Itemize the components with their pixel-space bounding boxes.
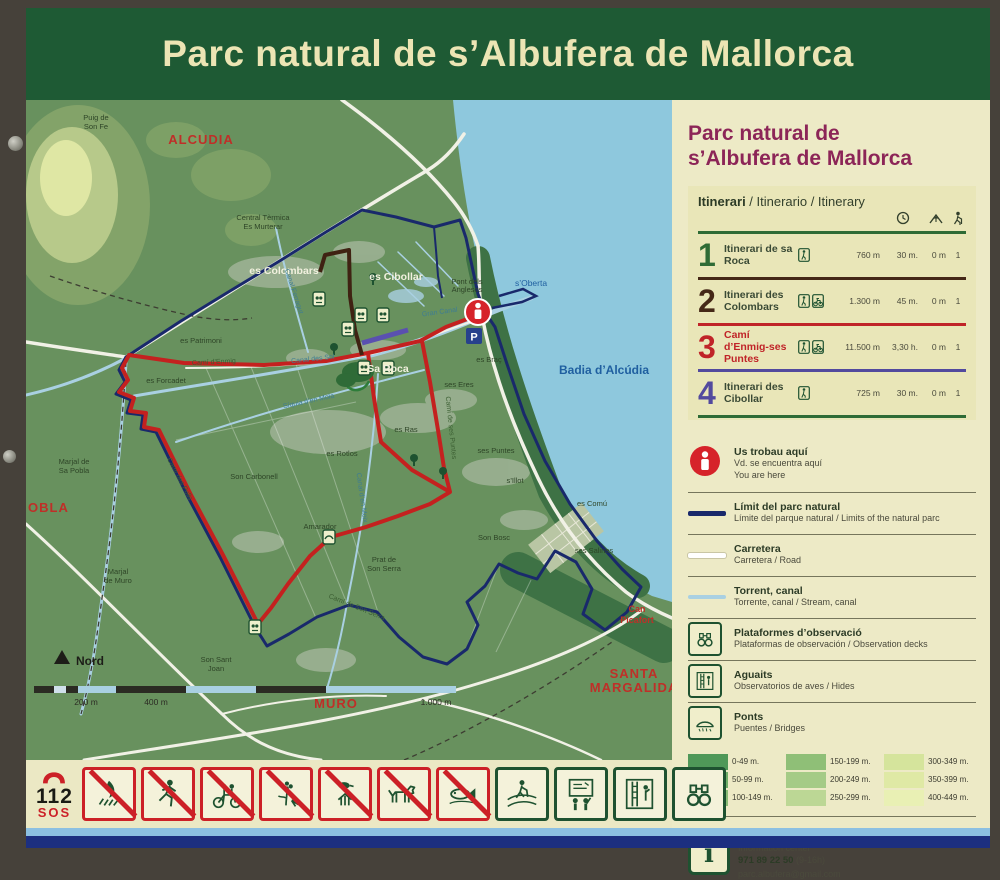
route-number: 2 <box>698 285 724 317</box>
elevation-scale: 0-49 m.50-99 m.100-149 m.150-199 m.200-2… <box>688 754 976 817</box>
elevation-value: 0 m <box>922 342 950 352</box>
map-label: ses Puntes <box>477 446 514 455</box>
time-value: 30 m. <box>884 388 922 398</box>
map-label: Son Sant <box>201 655 233 664</box>
bridge-icon <box>688 706 722 740</box>
scale-label: 400 m <box>144 697 168 707</box>
elevation-label: 0-49 m. <box>728 757 780 766</box>
title-banner: Parc natural de s’Albufera de Mallorca <box>26 8 990 100</box>
footer-icons: 112 SOS <box>36 760 672 828</box>
no-fishing-icon <box>436 767 490 821</box>
map-label: Son Bosc <box>478 533 510 542</box>
map-label: de Muro <box>104 576 132 585</box>
map-label: ALCUDIA <box>168 132 234 147</box>
elevation-label: 200-249 m. <box>826 775 878 784</box>
difficulty-value: 1 <box>950 250 966 260</box>
route-modes <box>798 386 832 400</box>
map-label: es Forcadet <box>146 376 187 385</box>
map-label: Prat de <box>372 555 396 564</box>
map-label: Badia d’Alcúdia <box>559 363 649 377</box>
walk-icon <box>798 294 810 308</box>
elevation-label: 100-149 m. <box>728 793 780 802</box>
map-label: Marjal de <box>59 457 90 466</box>
itinerary-column-icons <box>698 211 966 231</box>
info-email: parc.albufera@gmail.com <box>738 869 841 879</box>
screw-icon <box>8 136 23 151</box>
no-fire-icon <box>82 767 136 821</box>
walk-icon <box>798 340 810 354</box>
clock-icon <box>884 211 922 230</box>
map-label: Sa Pobla <box>59 466 90 475</box>
elevation-icon <box>922 211 950 230</box>
elevation-value: 0 m <box>922 388 950 398</box>
screw-icon <box>3 450 16 463</box>
right-panel: Parc natural de s’Albufera de Mallorca I… <box>672 100 990 828</box>
scale-label: 200 m <box>74 697 98 707</box>
elevation-swatch-row: 200-249 m. <box>786 772 878 788</box>
map-label: es Rotlos <box>326 449 358 458</box>
scale-label: 1.000 m <box>421 697 452 707</box>
map-label: Puig de <box>83 113 108 122</box>
emergency-112: 112 SOS <box>36 769 73 819</box>
no-catching-animals-icon <box>318 767 372 821</box>
elevation-swatch <box>786 754 826 770</box>
binoculars-info-icon <box>672 767 726 821</box>
itinerary-row: 3 Camí d’Enmig-ses Puntes 11.500 m 3,30 … <box>698 323 966 369</box>
observation-hide-icon <box>613 767 667 821</box>
route-number: 4 <box>698 377 724 409</box>
map-label: MARGALIDA <box>590 680 672 695</box>
elevation-label: 150-199 m. <box>826 757 878 766</box>
no-dogs-icon <box>377 767 431 821</box>
elevation-swatch-row: 350-399 m. <box>884 772 976 788</box>
itinerary-row: 2 Itinerari des Colombars 1.300 m 45 m. … <box>698 277 966 323</box>
map-label: es Patrimoni <box>180 336 222 345</box>
panel-title: Parc natural de s’Albufera de Mallorca <box>688 122 976 172</box>
elevation-swatch-row: 250-299 m. <box>786 790 878 806</box>
route-name: Itinerari des Cibollar <box>724 381 798 405</box>
you-are-here-marker <box>465 299 491 325</box>
route-name: Itinerari des Colombars <box>724 289 798 313</box>
map-label: SANTA <box>610 666 659 681</box>
elevation-label: 350-399 m. <box>924 775 976 784</box>
bottom-stripe-dark <box>26 836 990 848</box>
map-label: Es Murterar <box>243 222 283 231</box>
map-label: Picafort <box>620 615 654 625</box>
itinerary-section: Itinerari / Itinerario / Itinerary 1 Iti… <box>688 186 976 420</box>
map-label: es Braç <box>476 355 502 364</box>
walk-icon <box>798 248 810 262</box>
legend-row: Us trobau aquí Vd. se encuentra aquí You… <box>688 436 976 492</box>
elevation-swatch-row: 400-449 m. <box>884 790 976 806</box>
elevation-value: 0 m <box>922 296 950 306</box>
legend-row: Límit del parc natural Límite del parque… <box>688 492 976 534</box>
elevation-label: 50-99 m. <box>728 775 780 784</box>
itinerary-row: 4 Itinerari des Cibollar 725 m 30 m. 0 m… <box>698 369 966 418</box>
itinerary-row: 1 Itinerari de sa Roca 760 m 30 m. 0 m 1 <box>698 231 966 277</box>
map-label: es Cibollar <box>369 271 423 283</box>
elevation-swatch <box>786 772 826 788</box>
legend-row: Ponts Puentes / Bridges <box>688 702 976 744</box>
elevation-swatch <box>786 790 826 806</box>
map-label: Anglesos <box>452 285 483 294</box>
map-label: s’Illot <box>506 476 524 485</box>
bike-icon <box>812 294 824 308</box>
no-running-icon <box>141 767 195 821</box>
elevation-swatch <box>884 790 924 806</box>
elevation-swatch-row: 300-349 m. <box>884 754 976 770</box>
route-modes <box>798 294 832 308</box>
north-label: Nord <box>76 654 104 668</box>
legend-row: Torrent, canal Torrente, canal / Stream,… <box>688 576 976 618</box>
difficulty-value: 1 <box>950 388 966 398</box>
hide-map-icon <box>313 292 325 306</box>
park-map: P 200 m400 m1.000 m ALCUDIAMUROSANTAMARG… <box>26 100 672 760</box>
road-line <box>688 553 726 558</box>
elevation-swatch-row: 150-199 m. <box>786 754 878 770</box>
park-limit-line <box>688 511 726 516</box>
map-label: Son Fe <box>84 122 108 131</box>
cibollar-lagoon <box>388 289 424 303</box>
map-label: Marjal <box>108 567 129 576</box>
sign-title: Parc natural de s’Albufera de Mallorca <box>162 33 853 75</box>
distance-value: 11.500 m <box>832 342 884 352</box>
map-label: es Comú <box>577 499 607 508</box>
park-sign: Parc natural de s’Albufera de Mallorca <box>26 8 990 848</box>
route-modes <box>798 248 832 262</box>
you-are-here-icon <box>688 444 734 483</box>
elevation-label: 300-349 m. <box>924 757 976 766</box>
route-number: 1 <box>698 239 724 271</box>
bridge-map-icon <box>323 530 335 544</box>
binoculars-icon <box>688 622 722 656</box>
map-label: Central Tèrmica <box>236 213 290 222</box>
route-name: Camí d’Enmig-ses Puntes <box>724 329 798 365</box>
route-number: 3 <box>698 331 724 363</box>
parking-icon: P <box>466 328 482 344</box>
bottom-stripe-light <box>26 828 990 836</box>
hide-map-icon <box>377 308 389 322</box>
walking-trail-icon <box>495 767 549 821</box>
hide-map-icon <box>355 308 367 322</box>
map-label: Can <box>628 604 645 614</box>
map-label: Sa Roca <box>367 363 409 375</box>
no-cycling-icon <box>200 767 254 821</box>
elevation-label: 400-449 m. <box>924 793 976 802</box>
time-value: 3,30 h. <box>884 342 922 352</box>
map-label: es Ras <box>394 425 418 434</box>
legend-row: Aguaits Observatorios de aves / Hides <box>688 660 976 702</box>
map-label: OBLA <box>28 500 69 515</box>
elevation-value: 0 m <box>922 250 950 260</box>
distance-value: 725 m <box>832 388 884 398</box>
panel-title-line1: Parc natural de <box>688 122 840 145</box>
distance-value: 1.300 m <box>832 296 884 306</box>
hide-map-icon <box>249 620 261 634</box>
hide-icon <box>688 664 722 698</box>
hiker-icon <box>950 211 966 231</box>
phone-icon <box>37 769 71 785</box>
map-label: s’Oberta <box>515 278 547 288</box>
route-modes <box>798 340 832 354</box>
time-value: 45 m. <box>884 296 922 306</box>
map-label: Joan <box>208 664 224 673</box>
legend-row: Carretera Carretera / Road <box>688 534 976 576</box>
time-value: 30 m. <box>884 250 922 260</box>
distance-value: 760 m <box>832 250 884 260</box>
info-phone: 971 89 22 50 <box>738 855 793 866</box>
difficulty-value: 1 <box>950 342 966 352</box>
svg-text:P: P <box>470 332 477 344</box>
hide-map-icon <box>342 322 354 336</box>
no-picking-plants-icon <box>259 767 313 821</box>
elevation-swatch <box>884 772 924 788</box>
itinerary-header: Itinerari / Itinerario / Itinerary <box>698 194 966 209</box>
map-label: ses Eres <box>444 380 473 389</box>
walk-icon <box>798 386 810 400</box>
legend-row: Plataformes d’observació Plataformas de … <box>688 618 976 660</box>
panel-title-line2: s’Albufera de Mallorca <box>688 147 912 170</box>
elevation-label: 250-299 m. <box>826 793 878 802</box>
map-label: Son Carbonell <box>230 472 278 481</box>
exhibition-icon <box>554 767 608 821</box>
elevation-swatch <box>884 754 924 770</box>
legend-section: Us trobau aquí Vd. se encuentra aquí You… <box>688 436 976 744</box>
difficulty-value: 1 <box>950 296 966 306</box>
map-label: Amarador <box>304 522 337 531</box>
route-name: Itinerari de sa Roca <box>724 243 798 267</box>
map-label: Son Serra <box>367 564 402 573</box>
map-label: ses Salines <box>575 546 614 555</box>
stream-line <box>688 595 726 599</box>
bike-icon <box>812 340 824 354</box>
map-label: MURO <box>314 696 358 711</box>
